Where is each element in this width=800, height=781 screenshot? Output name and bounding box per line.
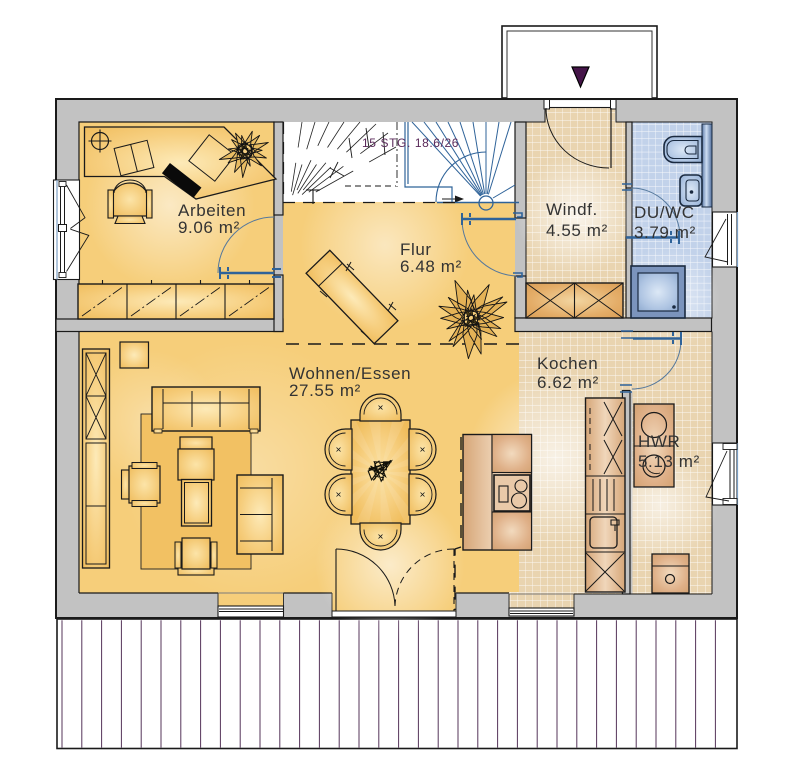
svg-text:15 STG. 18.6/26: 15 STG. 18.6/26 <box>362 136 459 150</box>
svg-text:Kochen: Kochen <box>537 354 598 373</box>
svg-text:6.48 m²: 6.48 m² <box>400 257 462 276</box>
svg-text:9.06 m²: 9.06 m² <box>178 218 240 237</box>
svg-text:5.13 m²: 5.13 m² <box>638 452 700 471</box>
svg-text:Windf.: Windf. <box>546 200 598 219</box>
svg-text:DU/WC: DU/WC <box>634 203 695 222</box>
svg-text:4.55 m²: 4.55 m² <box>546 221 608 240</box>
svg-text:3.79 m²: 3.79 m² <box>634 223 696 242</box>
svg-text:6.62 m²: 6.62 m² <box>537 373 599 392</box>
svg-text:27.55 m²: 27.55 m² <box>289 381 361 400</box>
svg-text:HWR: HWR <box>638 432 680 451</box>
